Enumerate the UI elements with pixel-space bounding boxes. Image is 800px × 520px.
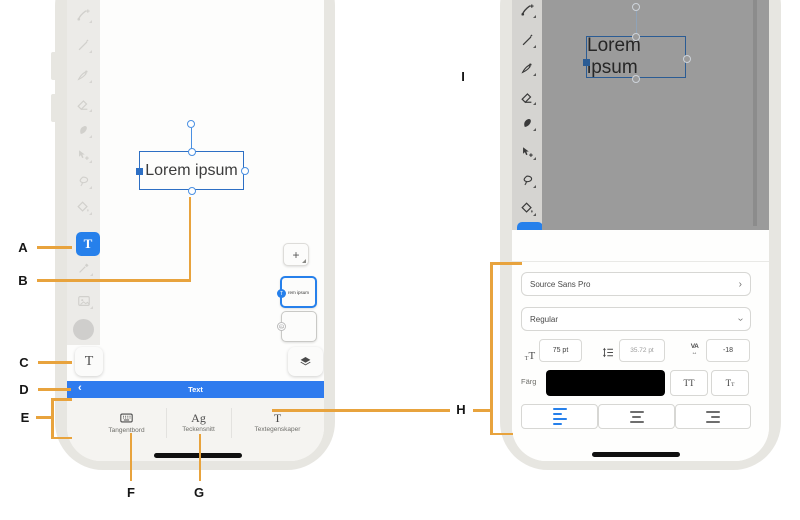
- fill-icon[interactable]: [74, 198, 92, 216]
- fill-icon[interactable]: [518, 199, 536, 217]
- color-label: Färg: [521, 377, 536, 386]
- align-center-button[interactable]: [598, 404, 675, 429]
- font-size-icon: TT: [522, 342, 538, 362]
- layer-thumbnail-selected[interactable]: rem ipsum T: [280, 276, 317, 308]
- text-object-content: Lorem ipsum: [587, 35, 685, 79]
- lasso-icon[interactable]: [518, 171, 536, 189]
- callout-b-line: [189, 197, 192, 282]
- text-properties-panel: Textegenskaper Source Sans Pro › Regular…: [512, 230, 769, 461]
- layers-icon: [299, 355, 312, 368]
- pencil-icon[interactable]: [518, 31, 536, 49]
- text-object[interactable]: Lorem ipsum: [139, 151, 244, 190]
- image-icon[interactable]: [75, 292, 93, 310]
- font-icon: Ag: [191, 412, 206, 424]
- font-style-select[interactable]: Regular ›: [521, 307, 751, 331]
- font-family-value: Source Sans Pro: [530, 280, 590, 289]
- canvas-scrollbar[interactable]: [753, 0, 757, 226]
- callout-f: F: [123, 485, 139, 500]
- callout-c: C: [16, 355, 32, 370]
- callout-d-line: [38, 388, 71, 391]
- chevron-right-icon: ›: [739, 279, 742, 290]
- callout-b: B: [15, 273, 31, 288]
- rotate-handle[interactable]: [187, 120, 195, 128]
- paint-brush-icon[interactable]: [74, 6, 92, 24]
- tracking-field[interactable]: -18: [706, 339, 750, 362]
- text-color-swatch[interactable]: [546, 370, 665, 396]
- eraser-icon[interactable]: [518, 88, 536, 106]
- callout-d: D: [16, 382, 32, 397]
- right-handle[interactable]: [241, 167, 249, 175]
- type-tool-button-partial[interactable]: [517, 222, 543, 230]
- image-layer-badge: [277, 322, 286, 331]
- keyboard-button[interactable]: Tangentbord: [87, 404, 166, 440]
- smudge-icon[interactable]: [74, 121, 92, 139]
- align-right-button[interactable]: [675, 404, 751, 429]
- font-family-select[interactable]: Source Sans Pro ›: [521, 272, 751, 296]
- callout-e: E: [17, 410, 33, 425]
- top-handle[interactable]: [632, 33, 640, 41]
- callout-e-bracket: [51, 437, 72, 440]
- type-tool-button[interactable]: T: [76, 232, 100, 256]
- callout-e-bracket: [51, 398, 54, 439]
- callout-g-line: [199, 434, 202, 481]
- text-flow-handle[interactable]: [583, 59, 590, 66]
- bottom-handle[interactable]: [632, 75, 640, 83]
- callout-g: G: [191, 485, 207, 500]
- text-properties-icon: T: [274, 412, 281, 424]
- callout-a: A: [15, 240, 31, 255]
- callout-e-bracket: [51, 398, 72, 401]
- callout-c-line: [38, 361, 72, 364]
- callout-h: H: [453, 402, 469, 417]
- tracking-icon: VA ↔: [686, 339, 703, 361]
- font-size-field[interactable]: 75 pt: [539, 339, 582, 362]
- left-phone-screen: T Lorem ipsum + rem ipsum T T: [67, 0, 324, 461]
- right-toolbar: [512, 0, 542, 230]
- move-icon[interactable]: [74, 146, 92, 164]
- align-left-button[interactable]: [521, 404, 598, 429]
- divider: [512, 261, 769, 262]
- chevron-down-icon: ›: [735, 317, 746, 320]
- callout-b-line: [37, 279, 190, 282]
- keyboard-icon: [119, 411, 134, 425]
- callout-h-line: [473, 409, 491, 412]
- home-indicator[interactable]: [592, 452, 680, 457]
- callout-i: I: [455, 69, 471, 84]
- text-layer-badge: T: [277, 289, 286, 298]
- eyedropper-icon[interactable]: [75, 259, 93, 277]
- callout-a-line: [37, 246, 72, 249]
- layers-button[interactable]: [288, 347, 323, 376]
- lasso-icon[interactable]: [74, 172, 92, 190]
- baseline-position-button[interactable]: TT: [711, 370, 749, 396]
- ink-pen-icon[interactable]: [518, 59, 536, 77]
- line-spacing-field[interactable]: 35.72 pt: [619, 339, 665, 362]
- type-tool-label: T: [84, 236, 93, 252]
- text-mode-bar[interactable]: ‹ Text: [67, 381, 324, 398]
- left-phone-volume-button: [51, 52, 55, 80]
- font-style-value: Regular: [530, 315, 558, 324]
- uppercase-button[interactable]: TT: [670, 370, 708, 396]
- rotate-handle[interactable]: [632, 3, 640, 11]
- plus-icon: +: [292, 248, 299, 262]
- right-phone-screen: Lorem ipsum Textegenskaper Source Sans P…: [512, 0, 769, 461]
- back-chevron-icon[interactable]: ‹: [78, 382, 82, 394]
- expand-triangle-icon: [302, 259, 306, 263]
- text-properties-button-label: Textegenskaper: [255, 426, 301, 433]
- left-phone-volume-button: [51, 94, 55, 122]
- ink-pen-icon[interactable]: [74, 66, 92, 84]
- pencil-icon[interactable]: [74, 36, 92, 54]
- align-center-icon: [630, 409, 644, 424]
- layer-thumbnail[interactable]: [281, 311, 317, 342]
- callout-h-line: [272, 409, 450, 412]
- callout-h-bracket: [490, 262, 493, 435]
- figure-canvas: T Lorem ipsum + rem ipsum T T: [0, 0, 800, 520]
- callout-f-line: [130, 433, 133, 481]
- align-right-icon: [706, 409, 720, 424]
- bottom-handle[interactable]: [188, 187, 196, 195]
- text-flow-handle[interactable]: [136, 168, 143, 175]
- text-object-content: Lorem ipsum: [145, 162, 237, 180]
- callout-h-bracket: [490, 262, 522, 265]
- move-icon[interactable]: [518, 143, 536, 161]
- text-mode-bar-title: Text: [188, 385, 203, 394]
- callout-h-bracket: [490, 433, 513, 436]
- layer-thumbnail-text: rem ipsum: [288, 290, 309, 295]
- paint-brush-icon[interactable]: [518, 1, 536, 19]
- canvas-dimmed[interactable]: Lorem ipsum: [542, 0, 769, 230]
- smudge-icon[interactable]: [518, 114, 536, 132]
- keyboard-button-label: Tangentbord: [108, 427, 144, 434]
- right-handle[interactable]: [683, 55, 691, 63]
- text-tool-chip[interactable]: T: [75, 347, 103, 376]
- top-handle[interactable]: [188, 148, 196, 156]
- right-phone-side-button: [777, 37, 781, 105]
- line-spacing-icon: [600, 341, 616, 359]
- text-object[interactable]: Lorem ipsum: [586, 36, 686, 78]
- text-actions-panel: Tangentbord Ag Teckensnitt T Textegenska…: [67, 398, 324, 461]
- left-toolbar: T: [67, 0, 100, 345]
- add-layer-button[interactable]: +: [283, 243, 309, 266]
- eraser-icon[interactable]: [74, 95, 92, 113]
- font-button-label: Teckensnitt: [182, 426, 215, 433]
- color-indicator[interactable]: [73, 319, 94, 340]
- align-left-icon: [553, 407, 567, 427]
